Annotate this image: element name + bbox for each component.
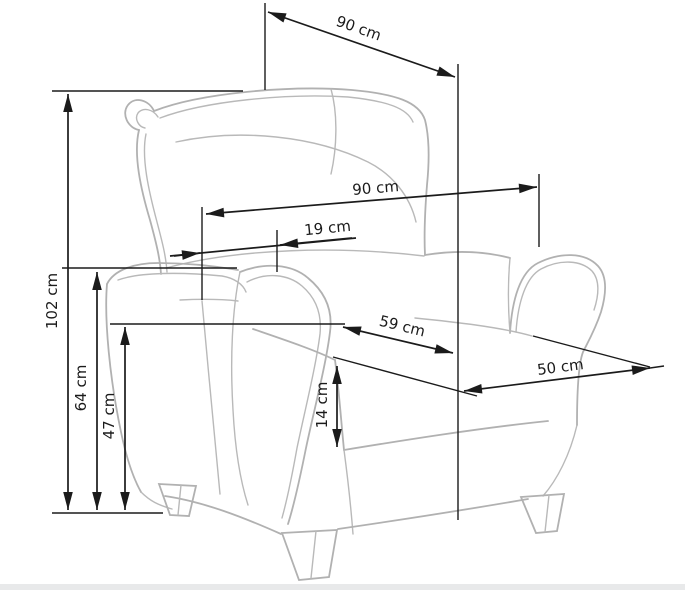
left-arm-scroll-inner xyxy=(247,276,320,518)
front-right-leg xyxy=(282,530,337,580)
height-overall-label: 102 cm xyxy=(43,273,61,329)
extension-line-seat-depth-left xyxy=(333,357,477,396)
left-armrest-pad-edge xyxy=(180,299,238,301)
dimension-width-overall: 90 cm xyxy=(206,177,537,214)
footrest-seam xyxy=(202,301,220,494)
front-left-leg xyxy=(159,484,196,516)
headrest-curl-inner xyxy=(137,110,158,128)
width-overall-label: 90 cm xyxy=(352,177,400,199)
depth-overall-label: 90 cm xyxy=(334,12,384,44)
right-arm-scroll-tail xyxy=(509,258,511,333)
dimension-depth-overall: 90 cm xyxy=(268,12,455,77)
dimension-diagram-canvas: 90 cm 90 cm 19 cm 102 cm 6 xyxy=(0,0,685,590)
armchair-dimension-diagram: 90 cm 90 cm 19 cm 102 cm 6 xyxy=(0,0,685,590)
seat-back-edge xyxy=(415,318,532,336)
seat-depth-label: 50 cm xyxy=(536,355,585,379)
seat-front-top-edge xyxy=(253,329,335,360)
right-arm-join xyxy=(425,252,510,258)
dimension-seat-depth: 50 cm xyxy=(464,355,650,391)
base-right-side xyxy=(543,425,577,496)
right-arm-scroll-inner xyxy=(516,262,598,332)
seat-bottom-seam xyxy=(344,421,548,450)
backrest-offset-label: 19 cm xyxy=(303,217,351,239)
extension-line-50cm-tail xyxy=(650,366,664,368)
seat-height-label: 47 cm xyxy=(100,393,118,440)
armchair-drawing xyxy=(106,89,605,580)
dimension-armrest-height: 64 cm xyxy=(72,272,97,510)
backrest-outline xyxy=(154,89,429,255)
dimension-seat-height: 47 cm xyxy=(100,327,125,510)
left-armrest-pad-seam xyxy=(118,273,246,292)
left-wing-edge xyxy=(137,130,161,274)
armrest-height-label: 64 cm xyxy=(72,365,90,412)
dimension-seat-width: 59 cm xyxy=(343,312,453,353)
front-face-edge xyxy=(344,450,353,534)
right-arm-scroll-outer xyxy=(510,255,605,425)
floor-strip xyxy=(0,584,685,590)
left-arm-scroll-left-edge xyxy=(232,272,248,505)
left-side-edge xyxy=(106,284,141,492)
dimension-cushion-thickness: 14 cm xyxy=(313,366,337,447)
cushion-thickness-label: 14 cm xyxy=(313,382,331,429)
base-right-bottom xyxy=(338,499,528,529)
left-wing-edge-inner xyxy=(144,134,167,272)
headrest-center-seam xyxy=(331,89,336,174)
backrest-inner-seam xyxy=(160,96,413,122)
dimension-height-overall: 102 cm xyxy=(43,94,68,510)
